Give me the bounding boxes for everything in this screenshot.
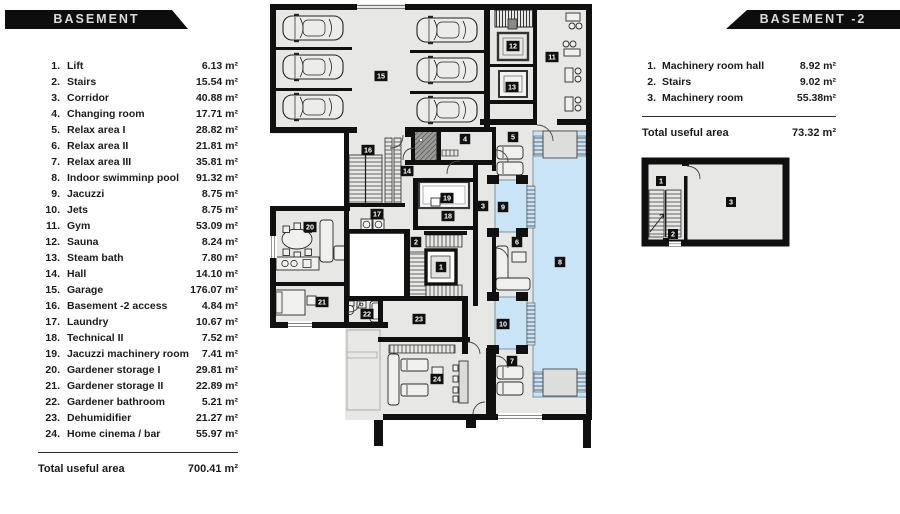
room-badge-6: 6 — [512, 237, 523, 247]
room-no: 17. — [38, 314, 60, 330]
room-no: 15. — [38, 282, 60, 298]
svg-text:4: 4 — [463, 135, 467, 144]
room-area: 8.75 m² — [202, 186, 238, 202]
room-area: 8.92 m² — [800, 58, 836, 74]
svg-text:7: 7 — [510, 357, 514, 366]
total-label: Total useful area — [38, 463, 125, 475]
room-area: 22.89 m² — [196, 378, 238, 394]
total-value: 73.32 m² — [792, 127, 836, 139]
room-badge-1: 1 — [436, 262, 447, 272]
room-list-item: 4.Changing room17.71 m² — [38, 106, 238, 122]
svg-text:3: 3 — [729, 198, 733, 207]
room-name: Relax area I — [67, 122, 196, 138]
svg-text:3: 3 — [481, 202, 485, 211]
room-name: Gardener storage II — [67, 378, 196, 394]
room-badge-20: 20 — [304, 222, 317, 232]
room-name: Steam bath — [67, 250, 202, 266]
room-list-item: 15.Garage176.07 m² — [38, 282, 238, 298]
total-useful-area: Total useful area 73.32 m² — [642, 127, 836, 139]
room-list-item: 10.Jets8.75 m² — [38, 202, 238, 218]
room-area: 17.71 m² — [196, 106, 238, 122]
room-area: 6.13 m² — [202, 58, 238, 74]
basement-banner: BASEMENT — [5, 10, 188, 29]
shower-room — [413, 130, 437, 162]
room-badge-13: 13 — [506, 82, 519, 92]
room-list-item: 3.Corridor40.88 m² — [38, 90, 238, 106]
room-badge-14: 14 — [401, 166, 414, 176]
room-badge-11: 11 — [546, 52, 559, 62]
svg-text:21: 21 — [318, 298, 326, 307]
basement2-banner-label: BASEMENT -2 — [760, 12, 867, 26]
basement2-badge-2: 2 — [668, 229, 678, 239]
room-area: 21.27 m² — [196, 410, 238, 426]
room-list-item: 22.Gardener bathroom5.21 m² — [38, 394, 238, 410]
room-badge-3: 3 — [478, 201, 489, 211]
schedule-divider — [38, 452, 238, 453]
svg-text:6: 6 — [515, 238, 519, 247]
room-badge-8: 8 — [555, 257, 566, 267]
svg-text:13: 13 — [508, 83, 516, 92]
room-area: 9.02 m² — [800, 74, 836, 90]
room-name: Gardener storage I — [67, 362, 196, 378]
svg-text:5: 5 — [511, 133, 515, 142]
svg-text:2: 2 — [414, 238, 418, 247]
room-area: 53.09 m² — [196, 218, 238, 234]
room-name: Relax area II — [67, 138, 196, 154]
room-list-item: 7.Relax area III35.81 m² — [38, 154, 238, 170]
schedule-divider — [642, 116, 836, 117]
room-no: 14. — [38, 266, 60, 282]
room-list-item: 20.Gardener storage I29.81 m² — [38, 362, 238, 378]
room-name: Technical II — [67, 330, 202, 346]
room-area: 14.10 m² — [196, 266, 238, 282]
room-name: Garage — [67, 282, 190, 298]
room-no: 6. — [38, 138, 60, 154]
room-badge-5: 5 — [508, 132, 519, 142]
room-no: 2. — [642, 74, 656, 90]
room-no: 5. — [38, 122, 60, 138]
room-badge-22: 22 — [361, 309, 374, 319]
basement2-banner: BASEMENT -2 — [726, 10, 900, 29]
basement-banner-label: BASEMENT — [53, 12, 139, 26]
room-no: 11. — [38, 218, 60, 234]
room-name: Gym — [67, 218, 196, 234]
room-list-item: 9.Jacuzzi8.75 m² — [38, 186, 238, 202]
room-name: Home cinema / bar — [67, 426, 196, 442]
room-name: Machinery room — [662, 90, 797, 106]
room-name: Lift — [67, 58, 202, 74]
room-no: 20. — [38, 362, 60, 378]
room-area: 40.88 m² — [196, 90, 238, 106]
room-area: 15.54 m² — [196, 74, 238, 90]
room-badge-24: 24 — [431, 374, 444, 384]
room-area: 5.21 m² — [202, 394, 238, 410]
room-badge-2: 2 — [411, 237, 422, 247]
room-badge-19: 19 — [441, 193, 454, 203]
room-name: Stairs — [67, 74, 196, 90]
room-name: Basement -2 access — [67, 298, 202, 314]
room-list-item: 2.Stairs15.54 m² — [38, 74, 238, 90]
room-name: Dehumidifier — [67, 410, 196, 426]
room-name: Machinery room hall — [662, 58, 800, 74]
room-list-item: 21.Gardener storage II22.89 m² — [38, 378, 238, 394]
room-list-item: 11.Gym53.09 m² — [38, 218, 238, 234]
room-name: Sauna — [67, 234, 202, 250]
room-badge-21: 21 — [316, 297, 329, 307]
room-list-item: 6.Relax area II21.81 m² — [38, 138, 238, 154]
room-area: 91.32 m² — [196, 170, 238, 186]
void-lightwell — [346, 230, 408, 300]
svg-text:1: 1 — [439, 263, 443, 272]
room-list-item: 8.Indoor swimminp pool91.32 m² — [38, 170, 238, 186]
room-badge-17: 17 — [371, 209, 384, 219]
room-area: 8.75 m² — [202, 202, 238, 218]
room-no: 3. — [642, 90, 656, 106]
room-name: Hall — [67, 266, 196, 282]
svg-text:20: 20 — [306, 223, 314, 232]
total-value: 700.41 m² — [188, 463, 238, 475]
room-badge-18: 18 — [442, 211, 455, 221]
room-area: 28.82 m² — [196, 122, 238, 138]
svg-text:15: 15 — [377, 72, 385, 81]
room-no: 7. — [38, 154, 60, 170]
room-name: Laundry — [67, 314, 196, 330]
svg-text:1: 1 — [659, 177, 663, 186]
svg-text:8: 8 — [558, 258, 562, 267]
room-name: Gardener bathroom — [67, 394, 202, 410]
svg-text:9: 9 — [501, 203, 505, 212]
room-no: 3. — [38, 90, 60, 106]
room-name: Changing room — [67, 106, 196, 122]
room-no: 24. — [38, 426, 60, 442]
room-badge-16: 16 — [362, 145, 375, 155]
room-no: 18. — [38, 330, 60, 346]
room-name: Jacuzzi — [67, 186, 202, 202]
svg-text:24: 24 — [433, 375, 441, 384]
room-no: 10. — [38, 202, 60, 218]
room-badge-23: 23 — [413, 314, 426, 324]
room-badge-15: 15 — [375, 71, 388, 81]
room-name: Jacuzzi machinery room — [67, 346, 202, 362]
room-area: 55.97 m² — [196, 426, 238, 442]
room-area: 8.24 m² — [202, 234, 238, 250]
room-badge-9: 9 — [498, 202, 509, 212]
room-no: 22. — [38, 394, 60, 410]
basement-room-schedule: 1.Lift6.13 m² 2.Stairs15.54 m² 3.Corrido… — [38, 58, 238, 475]
room-area: 7.80 m² — [202, 250, 238, 266]
room-name: Relax area III — [67, 154, 196, 170]
svg-text:11: 11 — [548, 53, 556, 62]
room-no: 21. — [38, 378, 60, 394]
basement2-window — [669, 242, 681, 249]
svg-text:22: 22 — [363, 310, 371, 319]
room-list-item: 16.Basement -2 access4.84 m² — [38, 298, 238, 314]
room-area: 10.67 m² — [196, 314, 238, 330]
room-area: 7.52 m² — [202, 330, 238, 346]
basement2-floor-plan: 1 2 3 — [636, 152, 794, 252]
room-no: 1. — [642, 58, 656, 74]
room-list-item: 24.Home cinema / bar55.97 m² — [38, 426, 238, 442]
room-list-item: 12.Sauna8.24 m² — [38, 234, 238, 250]
svg-text:12: 12 — [509, 42, 517, 51]
room-name: Indoor swimminp pool — [67, 170, 196, 186]
room-no: 1. — [38, 58, 60, 74]
room-area: 55.38m² — [797, 90, 836, 106]
room-list-item: 13.Steam bath7.80 m² — [38, 250, 238, 266]
room-area: 7.41 m² — [202, 346, 238, 362]
room-no: 16. — [38, 298, 60, 314]
room-no: 12. — [38, 234, 60, 250]
svg-text:18: 18 — [444, 212, 452, 221]
room-no: 2. — [38, 74, 60, 90]
sauna — [495, 10, 533, 60]
total-label: Total useful area — [642, 127, 729, 139]
room-no: 4. — [38, 106, 60, 122]
svg-text:16: 16 — [364, 146, 372, 155]
basement2-room-schedule: 1.Machinery room hall8.92 m² 2.Stairs9.0… — [642, 58, 836, 139]
svg-text:14: 14 — [403, 167, 411, 176]
basement-floor-plan: 1 2 3 4 5 6 7 8 9 10 11 12 13 14 15 16 1… — [268, 0, 640, 455]
room-list-item: 17.Laundry10.67 m² — [38, 314, 238, 330]
svg-text:19: 19 — [443, 194, 451, 203]
room-list-item: 18.Technical II7.52 m² — [38, 330, 238, 346]
room-name: Corridor — [67, 90, 196, 106]
room-name: Jets — [67, 202, 202, 218]
floorplan-sheet: BASEMENT BASEMENT -2 1.Lift6.13 m² 2.Sta… — [0, 0, 900, 514]
room-area: 4.84 m² — [202, 298, 238, 314]
room-badge-12: 12 — [507, 41, 520, 51]
room-list-item: 2.Stairs9.02 m² — [642, 74, 836, 90]
basement2-badge-1: 1 — [656, 176, 666, 186]
room-list-item: 1.Lift6.13 m² — [38, 58, 238, 74]
room-list-item: 5.Relax area I28.82 m² — [38, 122, 238, 138]
room-list-item: 3.Machinery room55.38m² — [642, 90, 836, 106]
room-no: 8. — [38, 170, 60, 186]
room-area: 21.81 m² — [196, 138, 238, 154]
svg-text:2: 2 — [671, 230, 675, 239]
svg-text:17: 17 — [373, 210, 381, 219]
room-badge-10: 10 — [497, 319, 510, 329]
changing-bench — [442, 150, 458, 156]
room-no: 13. — [38, 250, 60, 266]
room-area: 29.81 m² — [196, 362, 238, 378]
room-list-item: 14.Hall14.10 m² — [38, 266, 238, 282]
room-list-item: 23.Dehumidifier21.27 m² — [38, 410, 238, 426]
room-no: 9. — [38, 186, 60, 202]
room-badge-4: 4 — [460, 134, 471, 144]
svg-text:10: 10 — [499, 320, 507, 329]
svg-text:23: 23 — [415, 315, 423, 324]
basement2-badge-3: 3 — [726, 197, 736, 207]
room-badge-7: 7 — [507, 356, 518, 366]
room-name: Stairs — [662, 74, 800, 90]
total-useful-area: Total useful area 700.41 m² — [38, 463, 238, 475]
room-list-item: 19.Jacuzzi machinery room7.41 m² — [38, 346, 238, 362]
room-list-item: 1.Machinery room hall8.92 m² — [642, 58, 836, 74]
room-no: 23. — [38, 410, 60, 426]
room-area: 35.81 m² — [196, 154, 238, 170]
room-area: 176.07 m² — [190, 282, 238, 298]
room-no: 19. — [38, 346, 60, 362]
